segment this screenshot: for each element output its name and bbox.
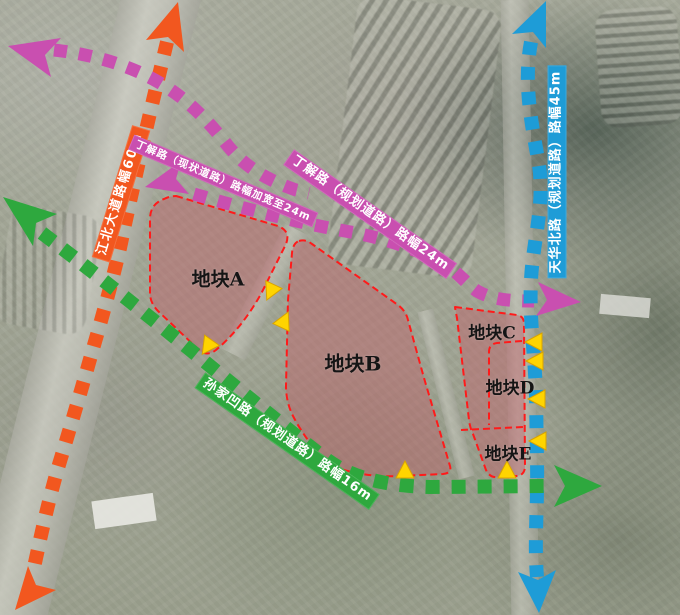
- tianhua-north-label: 天华北路（规划道路）路幅45m: [548, 66, 567, 279]
- parcel-d-label: 地块D: [486, 374, 535, 399]
- arrow-right-sunjiawa: [554, 465, 602, 507]
- tianhua-north-line: [528, 42, 541, 577]
- arrow-up-tianhua: [512, 1, 546, 48]
- overlay-graphics: [0, 0, 680, 615]
- jiangbei-dadao-line: [33, 42, 167, 572]
- arrow-down-jiangbei: [15, 566, 56, 610]
- parcel-c-label: 地块C: [468, 319, 516, 344]
- parcel-b-label: 地块B: [325, 348, 382, 377]
- planning-map: 江北大道路幅60m 丁解路（现状道路）路幅加宽至24m 丁解路（规划道路）路幅2…: [0, 0, 680, 615]
- arrow-left-dingjie-existing: [8, 38, 61, 77]
- parcel-a-label: 地块A: [192, 265, 245, 292]
- arrow-right-dingjie-planned: [536, 282, 581, 316]
- parcel-e-label: 地块E: [485, 440, 532, 465]
